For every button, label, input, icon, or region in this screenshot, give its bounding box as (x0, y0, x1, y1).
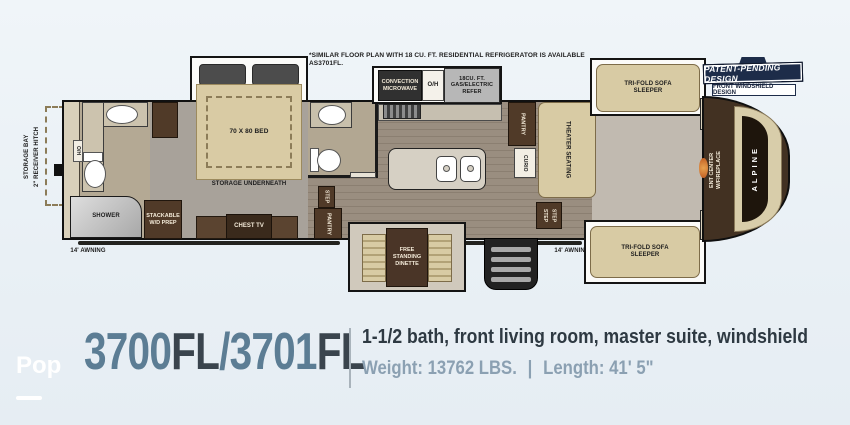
specs-line: Weight: 13762 LBS. | Length: 41' 5" (362, 358, 654, 380)
storage-underneath-label: STORAGE UNDERNEATH (196, 181, 302, 188)
shower: SHOWER (70, 196, 142, 238)
bedroom-step-label: STEP (323, 190, 329, 203)
bedroom-pantry: PANTRY (314, 208, 342, 239)
windshield-design-badge: FRONT WINDSHIELD DESIGN (712, 84, 796, 96)
convection-microwave: CONVECTION MICROWAVE (378, 70, 422, 101)
refrigerator-label: 18CU. FT. GAS/ELECTRIC REFER (447, 76, 497, 96)
chest-tv: CHEST TV (226, 214, 272, 239)
alpine-brand-panel: ALPINE (742, 116, 768, 222)
info-divider (349, 328, 351, 388)
wd-prep-closet: STACKABLE W/D PREP (144, 200, 182, 239)
living-steps: STEP STEP (536, 202, 562, 229)
curio: CURIO (514, 148, 536, 178)
pillow-left (199, 64, 246, 86)
kitchen-overhead-cabinet: O/H (422, 70, 444, 101)
watermark-dash (16, 396, 42, 400)
living-pantry: PANTRY (508, 102, 536, 146)
ent-center-label: ENT CENTER W/FIREPLACE (709, 134, 729, 206)
bedroom-pantry-label: PANTRY (325, 213, 332, 235)
curio-label: CURIO (522, 155, 528, 172)
tri-fold-sofa-top: TRI-FOLD SOFA SLEEPER (596, 64, 700, 112)
bath-overhead-label: O/H (75, 146, 81, 155)
step-tread (491, 267, 531, 272)
bath-sink (106, 105, 138, 124)
watermark-text: Pop (16, 352, 61, 380)
dinette-chairs-left (362, 234, 386, 282)
receiver-hitch-label: 2" RECEIVER HITCH (34, 112, 41, 202)
refrigerator: 18CU. FT. GAS/ELECTRIC REFER (444, 68, 500, 103)
dinette-label: FREE STANDING DINETTE (389, 247, 425, 268)
bedroom-step: STEP (318, 186, 335, 208)
wd-prep-label: STACKABLE W/D PREP (146, 213, 180, 227)
bath-overhead-cabinet: O/H (73, 140, 83, 162)
sink-drain-right-icon (467, 165, 474, 172)
ent-center: ENT CENTER W/FIREPLACE (708, 134, 730, 206)
range-cooktop (383, 104, 421, 119)
brand-label: ALPINE (750, 146, 759, 192)
kitchen-overhead-label: O/H (428, 82, 439, 89)
step-tread (491, 247, 531, 252)
model-description: 1-1/2 bath, front living room, master su… (362, 326, 808, 349)
fireplace-icon (699, 158, 708, 178)
weight-value: Weight: 13762 LBS. (362, 358, 517, 379)
windshield-design-label: FRONT WINDSHIELD DESIGN (713, 84, 795, 96)
pillow-right (252, 64, 299, 86)
living-step-label-b: STEP (550, 209, 556, 222)
step-tread (491, 257, 531, 262)
sofa-top-label: TRI-FOLD SOFA SLEEPER (616, 81, 680, 95)
model-b-suffix: FL (317, 323, 365, 381)
awning-bar-left (78, 241, 340, 245)
living-pantry-label: PANTRY (519, 113, 526, 135)
dinette-table: FREE STANDING DINETTE (386, 228, 428, 287)
half-bath-door (350, 172, 376, 178)
living-floor (592, 102, 702, 238)
floorplan-page: *SIMILAR FLOOR PLAN WITH 18 CU. FT. RESI… (0, 0, 850, 425)
specs-separator: | (528, 358, 533, 379)
half-bath-sink (318, 105, 346, 125)
dinette-chairs-right (428, 234, 452, 282)
model-number: 3700FL/3701FL (84, 322, 365, 382)
shower-label: SHOWER (92, 213, 120, 220)
tri-fold-sofa-bottom: TRI-FOLD SOFA SLEEPER (590, 226, 700, 278)
step-tread (491, 277, 531, 282)
patent-banner: PATENT-PENDING DESIGN (703, 62, 803, 85)
living-step-label-a: STEP (542, 209, 548, 222)
chest-tv-label: CHEST TV (229, 223, 269, 231)
theater-seating-label: THEATER SEATING (563, 121, 570, 178)
awning-left-label: 14' AWNING (64, 248, 112, 255)
sofa-bottom-label: TRI-FOLD SOFA SLEEPER (613, 245, 677, 259)
length-value: Length: 41' 5" (543, 358, 653, 379)
half-bath-toilet (317, 149, 341, 172)
bed-size-label: 70 X 80 BED (229, 128, 268, 136)
theater-seating: THEATER SEATING (538, 102, 596, 198)
model-b: 3701 (230, 323, 317, 381)
model-a-suffix: FL (171, 323, 219, 381)
entry-steps (484, 238, 538, 290)
model-slash: / (219, 323, 229, 381)
storage-bay-label: STORAGE BAY (24, 118, 31, 196)
bed-dashed-outline: 70 X 80 BED (206, 96, 292, 168)
bath-toilet (84, 160, 106, 188)
bedroom-wardrobe-left (152, 102, 178, 138)
microwave-label: CONVECTION MICROWAVE (380, 79, 420, 93)
patent-banner-label: PATENT-PENDING DESIGN (704, 62, 802, 85)
model-a: 3700 (84, 323, 171, 381)
sink-drain-left-icon (443, 165, 450, 172)
